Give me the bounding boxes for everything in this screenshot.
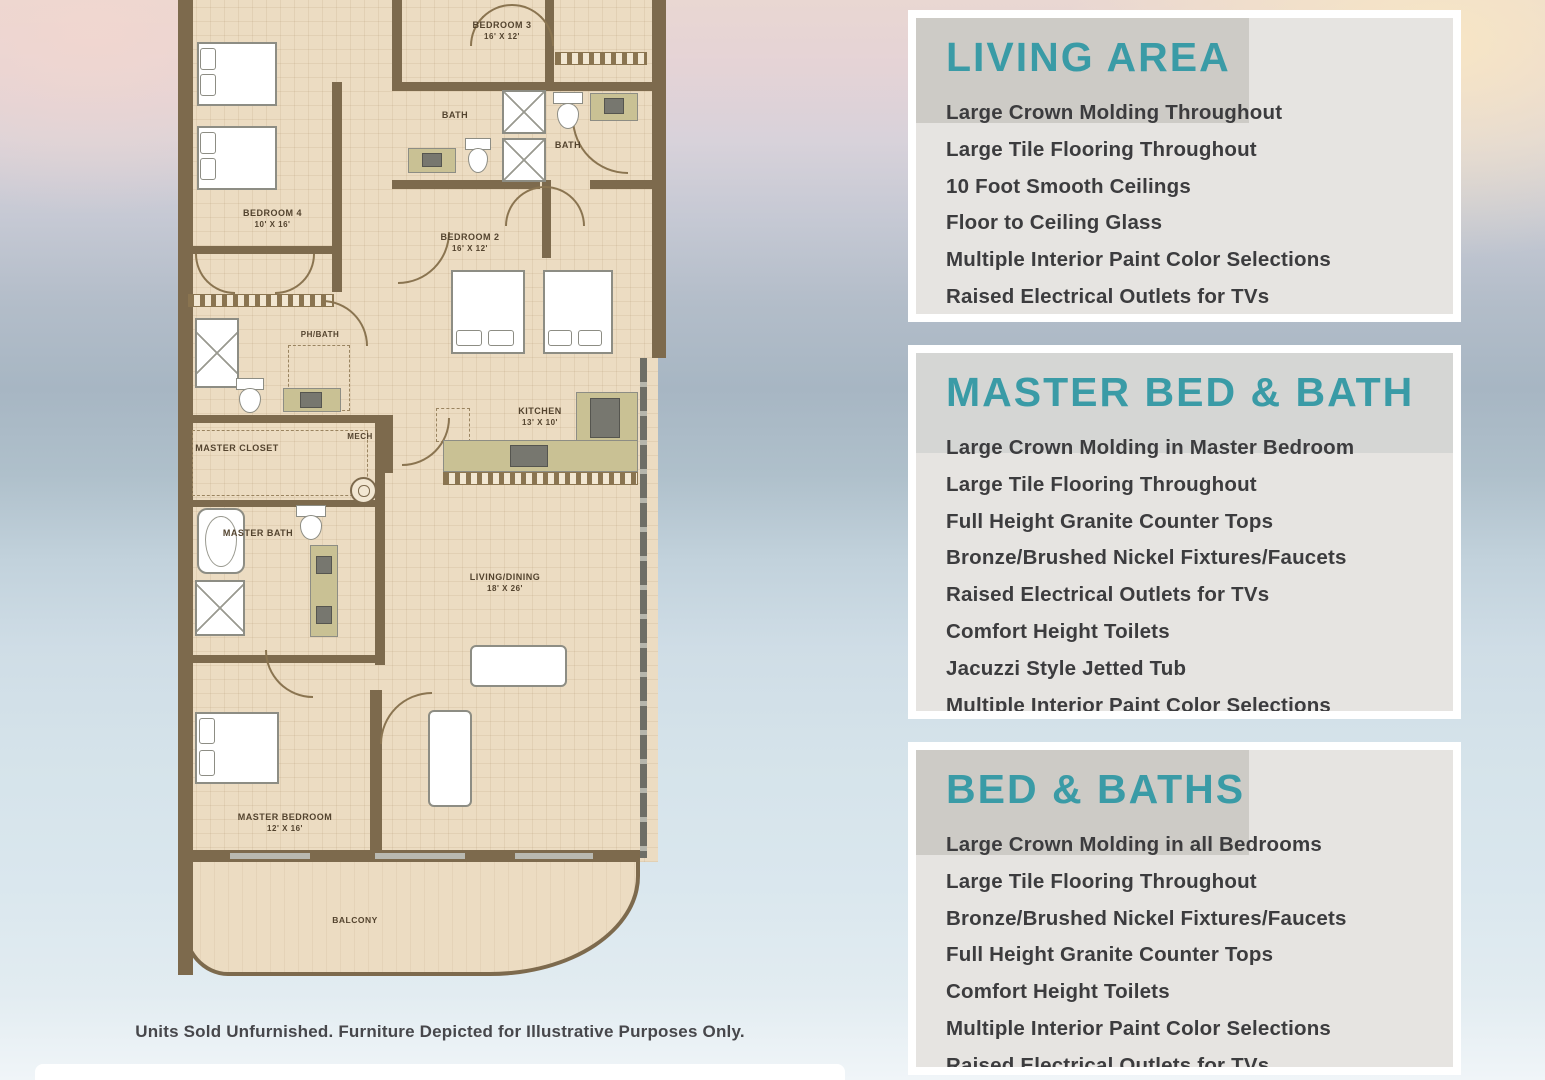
sink-icon	[316, 556, 332, 574]
jetted-tub-icon	[197, 508, 245, 574]
pillow-icon	[199, 750, 215, 776]
shower-icon	[502, 90, 546, 134]
panel-title: BED & BATHS	[946, 766, 1453, 813]
room-label-bath: BATH	[425, 110, 485, 122]
balcony-door	[230, 853, 310, 859]
bottom-cropped-box	[35, 1064, 845, 1080]
pillow-icon	[200, 132, 216, 154]
room-label-mech: MECH	[330, 432, 390, 442]
panel-bed-baths: BED & BATHS Large Crown Molding in all B…	[908, 742, 1461, 1075]
pillow-icon	[548, 330, 572, 346]
feature-list: Large Crown Molding ThroughoutLarge Tile…	[946, 95, 1453, 314]
wall-closet-bath	[184, 500, 379, 507]
pillow-icon	[200, 48, 216, 70]
feature-item: Raised Electrical Outlets for TVs	[946, 1048, 1453, 1067]
feature-item: Multiple Interior Paint Color Selections	[946, 688, 1453, 711]
pillow-icon	[199, 718, 215, 744]
bed4-closet-shelf	[188, 294, 334, 307]
entry-closet-shelf	[555, 52, 647, 65]
feature-list: Large Crown Molding in all BedroomsLarge…	[946, 827, 1453, 1067]
wall-baths-bottom-b	[590, 180, 666, 189]
brochure-page: BEDROOM 316' x 12' BATH BATH BEDROOM 410…	[0, 0, 1545, 1080]
island-bar-edge	[443, 472, 638, 485]
feature-item: Large Crown Molding in all Bedrooms	[946, 827, 1453, 864]
balcony-door	[515, 853, 593, 859]
toilet-icon	[236, 378, 264, 414]
shower-icon	[195, 318, 239, 388]
sink-icon	[510, 445, 548, 467]
sink-icon	[316, 606, 332, 624]
panel-title: LIVING AREA	[946, 34, 1453, 81]
toilet-icon	[553, 92, 583, 130]
room-label-balcony: BALCONY	[295, 915, 415, 926]
feature-item: Large Tile Flooring Throughout	[946, 132, 1453, 169]
feature-item: Large Tile Flooring Throughout	[946, 467, 1453, 504]
shower-icon	[195, 580, 245, 636]
feature-item: Multiple Interior Paint Color Selections	[946, 242, 1453, 279]
pillow-icon	[200, 74, 216, 96]
room-label-phbath: PH/BATH	[275, 330, 365, 340]
feature-item: Raised Electrical Outlets for TVs	[946, 279, 1453, 314]
loveseat-icon	[428, 710, 472, 807]
feature-item: Comfort Height Toilets	[946, 974, 1453, 1011]
washer-dryer-icon	[350, 477, 377, 504]
room-label-bedroom4: BEDROOM 410' x 16'	[200, 208, 345, 230]
wall-mech	[385, 415, 393, 473]
room-label-kitchen: KITCHEN13' x 10'	[480, 406, 600, 428]
feature-list: Large Crown Molding in Master BedroomLar…	[946, 430, 1453, 711]
room-label-bedroom2: BEDROOM 216' x 12'	[400, 232, 540, 254]
feature-item: Large Tile Flooring Throughout	[946, 864, 1453, 901]
room-label-bedroom3: BEDROOM 316' x 12'	[432, 20, 572, 42]
feature-item: Multiple Interior Paint Color Selections	[946, 1011, 1453, 1048]
room-label-master-bath: MASTER BATH	[218, 528, 298, 540]
glass-wall	[640, 358, 647, 858]
balcony-door	[375, 853, 465, 859]
feature-item: Raised Electrical Outlets for TVs	[946, 577, 1453, 614]
wall-closet-top	[184, 415, 384, 423]
feature-item: Full Height Granite Counter Tops	[946, 937, 1453, 974]
pillow-icon	[578, 330, 602, 346]
sink-icon	[604, 98, 624, 114]
feature-item: Bronze/Brushed Nickel Fixtures/Faucets	[946, 901, 1453, 938]
feature-item: Large Crown Molding in Master Bedroom	[946, 430, 1453, 467]
sofa-icon	[470, 645, 567, 687]
panel-title: MASTER BED & BATH	[946, 369, 1453, 416]
sink-icon	[300, 392, 322, 408]
feature-item: Jacuzzi Style Jetted Tub	[946, 651, 1453, 688]
feature-item: Bronze/Brushed Nickel Fixtures/Faucets	[946, 540, 1453, 577]
sink-icon	[422, 153, 442, 167]
toilet-icon	[296, 505, 326, 541]
wall-bed4-right	[332, 82, 342, 292]
wall-left	[178, 0, 193, 975]
room-label-living: LIVING/DINING18' x 26'	[435, 572, 575, 594]
feature-item: Full Height Granite Counter Tops	[946, 504, 1453, 541]
wall-bed4-closet	[184, 246, 336, 254]
feature-item: Comfort Height Toilets	[946, 614, 1453, 651]
room-label-bath: BATH	[538, 140, 598, 152]
panel-master-bed-bath: MASTER BED & BATH Large Crown Molding in…	[908, 345, 1461, 719]
panel-living-area: LIVING AREA Large Crown Molding Througho…	[908, 10, 1461, 322]
feature-item: 10 Foot Smooth Ceilings	[946, 169, 1453, 206]
feature-item: Floor to Ceiling Glass	[946, 205, 1453, 242]
wall-master-living	[370, 690, 382, 858]
room-label-master-bedroom: MASTER BEDROOM12' x 16'	[205, 812, 365, 834]
room-label-master-closet: MASTER CLOSET	[192, 443, 282, 455]
floor-plan: BEDROOM 316' x 12' BATH BATH BEDROOM 410…	[170, 0, 675, 980]
wall-right-upper	[652, 0, 666, 358]
wall-master-hall	[375, 415, 385, 665]
feature-item: Large Crown Molding Throughout	[946, 95, 1453, 132]
toilet-icon	[465, 138, 491, 174]
pillow-icon	[200, 158, 216, 180]
disclaimer-text: Units Sold Unfurnished. Furniture Depict…	[100, 1022, 780, 1042]
pillow-icon	[456, 330, 482, 346]
wall-bed3-bed4	[392, 0, 402, 86]
pillow-icon	[488, 330, 514, 346]
